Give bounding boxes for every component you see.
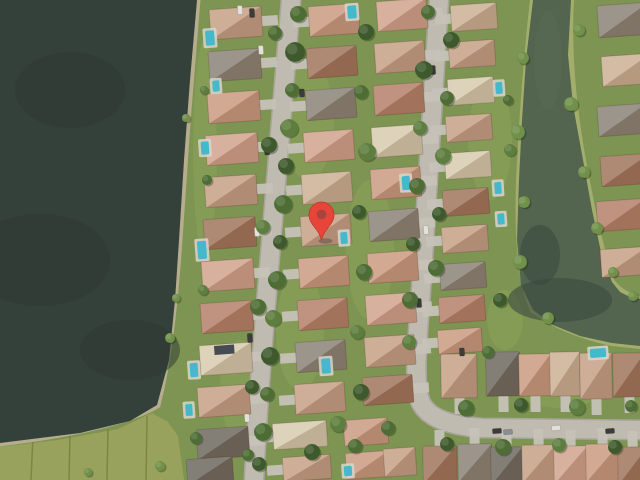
tree-foliage-highlight: [422, 6, 430, 14]
tree-foliage-highlight: [257, 221, 265, 229]
tree-foliage-highlight: [156, 462, 162, 468]
swimming-pool: [201, 141, 210, 155]
tree-foliage-highlight: [251, 300, 260, 309]
driveway: [469, 428, 479, 446]
house-roof: [445, 113, 493, 142]
house-roof: [367, 250, 419, 283]
tree-foliage-highlight: [359, 25, 368, 34]
tree-foliage-highlight: [414, 122, 422, 130]
tree-foliage-highlight: [403, 336, 411, 344]
house-roof: [441, 224, 489, 253]
tree-foliage-highlight: [574, 25, 581, 32]
house-roof: [368, 208, 420, 241]
tree-foliage-highlight: [496, 440, 505, 449]
tree-foliage-highlight: [407, 238, 415, 246]
tree-foliage-highlight: [291, 7, 300, 16]
tree-foliage-highlight: [592, 223, 599, 230]
swimming-pool: [347, 5, 357, 19]
parked-car: [492, 428, 501, 434]
field-fence-line: [146, 416, 147, 480]
tree-foliage-highlight: [355, 86, 363, 94]
parked-car: [459, 348, 465, 356]
house-roof: [441, 354, 478, 399]
tree-foliage-highlight: [403, 293, 412, 302]
tree-foliage-highlight: [357, 265, 366, 274]
tree-foliage-highlight: [609, 268, 615, 274]
tree-foliage-highlight: [275, 196, 285, 206]
tree-foliage-highlight: [191, 433, 198, 440]
marker-shadow: [319, 238, 333, 244]
house-roof: [442, 187, 490, 216]
marker-pin-dot: [317, 210, 327, 220]
tree-foliage-highlight: [274, 236, 282, 244]
house-roof: [197, 384, 251, 418]
tree-foliage-highlight: [416, 62, 426, 72]
tree-foliage-highlight: [483, 347, 490, 354]
tree-foliage-highlight: [570, 400, 579, 409]
tree-foliage-highlight: [286, 84, 294, 92]
house-roof: [205, 132, 259, 166]
tree-foliage-highlight: [436, 149, 445, 158]
tree-foliage-highlight: [85, 469, 89, 473]
tree-foliage-highlight: [351, 326, 359, 334]
tree-foliage-highlight: [269, 27, 277, 35]
parked-car: [605, 428, 614, 434]
house-roof: [601, 53, 640, 86]
swimming-pool: [205, 30, 215, 46]
tree-foliage-highlight: [514, 256, 522, 264]
tree-foliage-highlight: [515, 399, 523, 407]
canal-depth-shade: [520, 225, 560, 285]
tree-foliage-highlight: [246, 381, 254, 389]
house-roof: [196, 426, 250, 460]
tree-foliage-highlight: [173, 295, 177, 299]
house-roof: [209, 6, 263, 40]
tree-foliage-highlight: [331, 417, 340, 426]
house-roof: [597, 2, 640, 38]
house-roof: [305, 87, 357, 120]
house-roof: [201, 258, 255, 292]
tree-foliage-highlight: [183, 115, 187, 119]
house-roof: [362, 374, 414, 405]
driveway: [591, 397, 601, 415]
driveway: [560, 394, 570, 412]
tree-foliage-highlight: [261, 388, 269, 396]
tree-foliage-highlight: [494, 294, 502, 302]
swimming-pool: [344, 466, 353, 477]
solar-panel: [214, 345, 235, 355]
swimming-pool: [494, 182, 502, 194]
tree-foliage-highlight: [410, 179, 419, 188]
parked-car: [249, 8, 255, 17]
tree-foliage-highlight: [444, 33, 453, 42]
tree-foliage-highlight: [505, 145, 512, 152]
tree-foliage-highlight: [266, 311, 275, 320]
house-roof: [200, 300, 254, 334]
tree-foliage-highlight: [199, 286, 205, 292]
swimming-pool: [402, 176, 411, 191]
house-roof: [600, 246, 640, 277]
tree-foliage-highlight: [519, 197, 526, 204]
parked-car: [503, 429, 512, 435]
lake-depth-shade: [80, 320, 180, 380]
tree-foliage-highlight: [504, 96, 510, 102]
house-roof: [439, 261, 487, 290]
tree-foliage-highlight: [281, 120, 291, 130]
house-roof: [208, 48, 262, 82]
house-roof: [550, 352, 581, 397]
swimming-pool: [212, 80, 220, 91]
canal-depth-shade: [508, 278, 612, 322]
house-roof: [297, 297, 349, 330]
swimming-pool: [497, 213, 505, 224]
tree-foliage-highlight: [518, 53, 525, 60]
tree-foliage-highlight: [269, 272, 279, 282]
house-roof: [600, 153, 640, 186]
tree-foliage-highlight: [626, 401, 633, 408]
house-roof: [301, 171, 353, 204]
house-roof: [298, 255, 350, 288]
house-roof: [597, 103, 640, 136]
house-roof: [376, 0, 428, 32]
house-roof: [450, 2, 498, 31]
driveway: [533, 429, 543, 447]
tree-foliage-highlight: [441, 92, 449, 100]
tree-foliage-highlight: [255, 424, 265, 434]
house-roof: [207, 90, 261, 124]
house-roof: [306, 45, 358, 78]
house-roof: [522, 445, 557, 480]
house-roof: [519, 354, 552, 397]
tree-foliage-highlight: [354, 385, 363, 394]
tree-foliage-highlight: [287, 44, 298, 55]
swimming-pool: [190, 363, 199, 378]
swimming-pool: [590, 348, 607, 358]
house-roof: [203, 216, 257, 250]
tree-foliage-highlight: [553, 439, 561, 447]
tree-foliage-highlight: [382, 422, 390, 430]
tree-foliage-highlight: [353, 206, 361, 214]
tree-foliage-highlight: [201, 87, 205, 91]
tree-foliage-highlight: [433, 208, 441, 216]
satellite-map-canvas[interactable]: [0, 0, 640, 480]
swimming-pool: [321, 358, 331, 374]
swimming-pool: [495, 82, 503, 94]
tree-foliage-highlight: [579, 167, 586, 174]
swimming-pool: [185, 404, 193, 416]
canal-sheen: [534, 10, 562, 110]
parked-car: [423, 225, 429, 234]
tree-foliage-highlight: [565, 98, 573, 106]
house-roof: [613, 353, 640, 398]
parked-car: [244, 414, 250, 422]
field-fence-line: [107, 429, 108, 480]
tree-foliage-highlight: [203, 176, 209, 182]
parked-car: [258, 45, 264, 54]
tree-foliage-highlight: [359, 144, 369, 154]
parked-car: [237, 5, 243, 14]
driveway: [498, 394, 508, 412]
tree-foliage-highlight: [349, 440, 357, 448]
parked-car: [551, 425, 560, 431]
tree-foliage-highlight: [543, 313, 550, 320]
house-roof: [303, 129, 355, 162]
tree-foliage-highlight: [262, 348, 272, 358]
field-fence-line: [69, 432, 70, 480]
driveway: [530, 394, 540, 412]
tree-foliage-highlight: [262, 138, 271, 147]
house-roof: [186, 456, 234, 480]
tree-foliage-highlight: [441, 438, 449, 446]
tree-foliage-highlight: [166, 334, 172, 340]
house-roof: [294, 381, 346, 414]
tree-foliage-highlight: [429, 261, 438, 270]
satellite-imagery: [0, 0, 640, 480]
tree-foliage-highlight: [609, 441, 617, 449]
house-roof: [383, 447, 417, 477]
lake-depth-shade: [15, 52, 125, 128]
house-roof: [272, 420, 328, 450]
swimming-pool: [340, 232, 348, 244]
swimming-pool: [197, 241, 207, 260]
tree-foliage-highlight: [279, 159, 288, 168]
driveway: [627, 431, 637, 449]
tree-foliage-highlight: [459, 401, 468, 410]
house-roof: [438, 294, 486, 323]
parked-car: [247, 333, 253, 342]
tree-foliage-highlight: [629, 292, 635, 298]
tree-foliage-highlight: [305, 445, 314, 454]
house-roof: [458, 444, 493, 480]
tree-foliage-highlight: [512, 126, 520, 134]
tree-foliage-highlight: [243, 450, 250, 457]
house-roof: [373, 82, 425, 115]
